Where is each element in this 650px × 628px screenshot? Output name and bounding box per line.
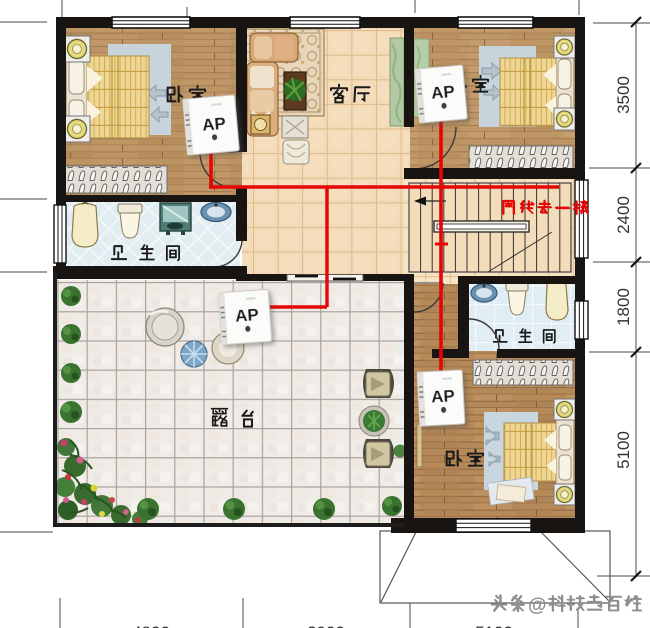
svg-text:2400: 2400 — [614, 196, 633, 234]
svg-text:3500: 3500 — [614, 76, 633, 114]
svg-text:AP: AP — [201, 114, 226, 135]
svg-text:5100: 5100 — [614, 431, 633, 469]
svg-text:1800: 1800 — [614, 288, 633, 326]
svg-text:@: @ — [528, 595, 547, 616]
svg-text:4800: 4800 — [132, 623, 170, 628]
svg-text:3900: 3900 — [307, 623, 345, 628]
svg-text:AP: AP — [431, 386, 456, 406]
svg-text:AP: AP — [234, 305, 259, 326]
svg-text:AP: AP — [430, 82, 455, 103]
svg-text:5100: 5100 — [475, 623, 513, 628]
